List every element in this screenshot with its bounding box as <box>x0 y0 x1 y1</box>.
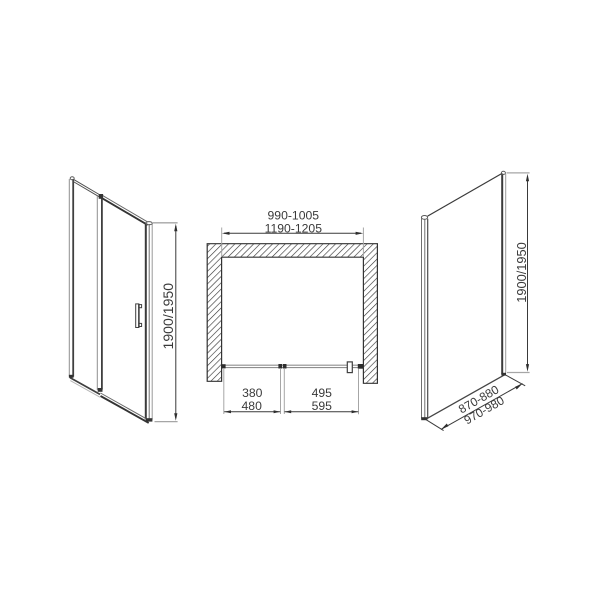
svg-text:595: 595 <box>312 399 333 413</box>
svg-text:1900/1950: 1900/1950 <box>160 283 176 350</box>
svg-text:1190-1205: 1190-1205 <box>265 221 323 235</box>
svg-text:1900/1950: 1900/1950 <box>514 242 529 303</box>
svg-text:480: 480 <box>242 399 263 413</box>
svg-text:380: 380 <box>242 386 263 400</box>
svg-text:495: 495 <box>312 386 333 400</box>
